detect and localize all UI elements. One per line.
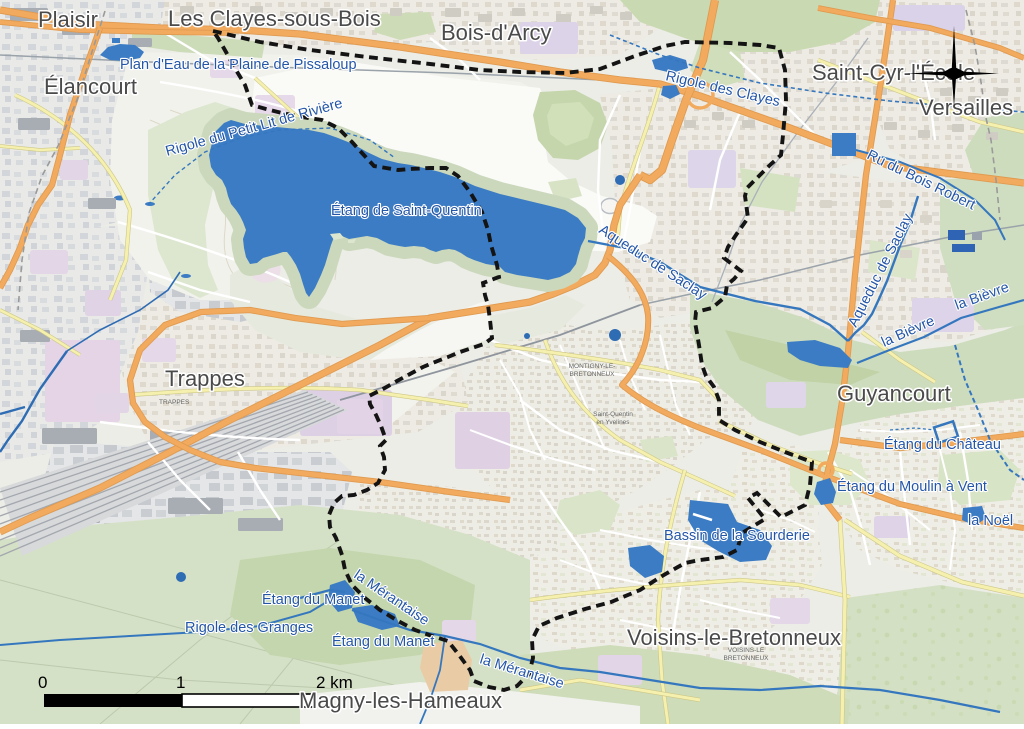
svg-text:BRETONNEUX: BRETONNEUX: [723, 655, 769, 662]
svg-text:Étang du Moulin à Vent: Étang du Moulin à Vent: [837, 478, 987, 495]
svg-text:Plan d'Eau de la Plaine de Pis: Plan d'Eau de la Plaine de Pissaloup: [120, 57, 357, 73]
svg-text:Bois-d'Arcy: Bois-d'Arcy: [441, 20, 552, 45]
svg-text:Bassin de la Sourderie: Bassin de la Sourderie: [664, 528, 810, 544]
svg-text:Plaisir: Plaisir: [38, 7, 98, 32]
svg-text:Étang du Manet: Étang du Manet: [262, 591, 364, 608]
svg-text:Trappes: Trappes: [165, 366, 245, 391]
svg-text:la Noël: la Noël: [968, 513, 1013, 529]
svg-text:VOISINS-LE: VOISINS-LE: [728, 647, 765, 654]
svg-text:Saint-Quentin: Saint-Quentin: [593, 411, 633, 418]
svg-text:Les Clayes-sous-Bois: Les Clayes-sous-Bois: [168, 6, 381, 31]
svg-text:en Yvelines: en Yvelines: [596, 419, 630, 426]
svg-text:Étang du Manet: Étang du Manet: [332, 633, 434, 650]
svg-text:Versailles: Versailles: [919, 95, 1013, 120]
svg-text:Rigole des Granges: Rigole des Granges: [185, 620, 313, 636]
svg-text:MONTIGNY-LE-: MONTIGNY-LE-: [569, 363, 616, 370]
svg-text:Guyancourt: Guyancourt: [837, 381, 951, 406]
svg-text:BRETONNEUX: BRETONNEUX: [569, 371, 615, 378]
svg-text:Étang de Saint-Quentin: Étang de Saint-Quentin: [331, 202, 482, 219]
svg-text:TRAPPES: TRAPPES: [159, 399, 190, 406]
svg-text:0: 0: [38, 673, 47, 692]
svg-text:Étang du Château: Étang du Château: [884, 436, 1001, 453]
svg-text:Magny-les-Hameaux: Magny-les-Hameaux: [299, 688, 502, 713]
svg-text:Élancourt: Élancourt: [44, 74, 137, 99]
svg-text:1: 1: [176, 673, 185, 692]
